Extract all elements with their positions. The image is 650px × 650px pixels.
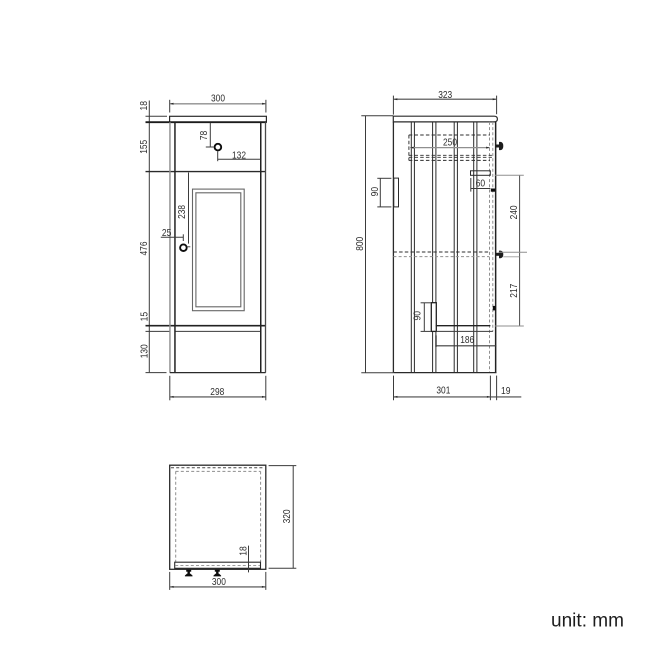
svg-text:18: 18: [237, 546, 249, 556]
svg-text:90: 90: [369, 187, 381, 197]
svg-text:19: 19: [501, 385, 511, 397]
svg-text:320: 320: [281, 509, 293, 523]
svg-text:298: 298: [210, 386, 224, 398]
svg-text:217: 217: [508, 284, 520, 298]
svg-text:78: 78: [198, 131, 210, 141]
svg-text:323: 323: [438, 89, 452, 101]
svg-text:130: 130: [138, 344, 150, 358]
svg-text:300: 300: [212, 576, 226, 588]
svg-text:18: 18: [138, 101, 150, 111]
svg-text:250: 250: [443, 137, 457, 149]
svg-text:unit: mm: unit: mm: [551, 611, 624, 632]
svg-text:476: 476: [138, 241, 150, 255]
svg-text:132: 132: [232, 149, 246, 161]
svg-text:800: 800: [354, 237, 366, 251]
svg-text:238: 238: [176, 205, 188, 219]
svg-text:25: 25: [162, 227, 172, 239]
svg-text:240: 240: [508, 205, 520, 219]
svg-text:186: 186: [460, 334, 474, 346]
svg-text:15: 15: [138, 312, 150, 322]
svg-text:301: 301: [436, 385, 450, 397]
svg-text:155: 155: [138, 140, 150, 154]
svg-text:300: 300: [211, 93, 225, 105]
svg-text:90: 90: [411, 311, 423, 321]
svg-text:60: 60: [476, 177, 486, 189]
